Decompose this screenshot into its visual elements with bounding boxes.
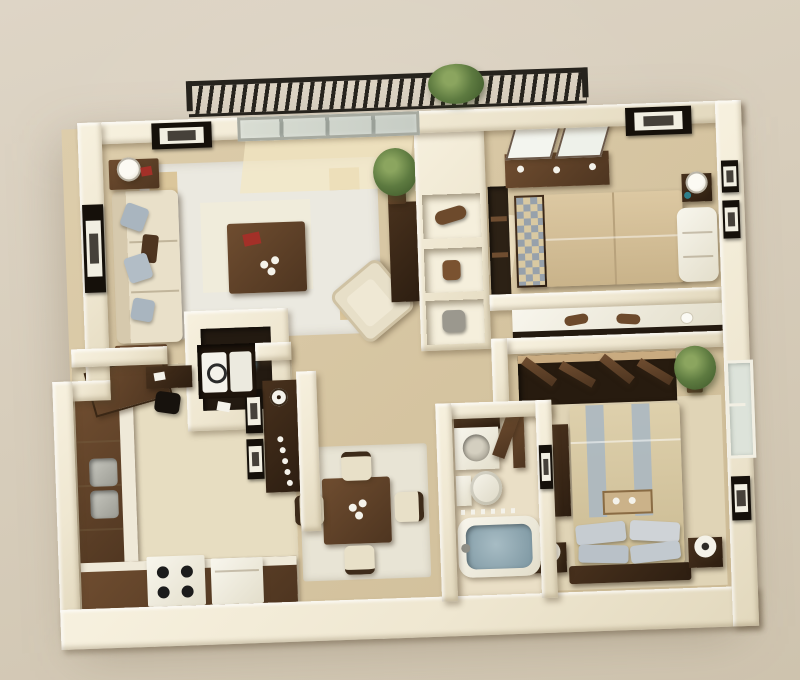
tray-dish [629,497,636,504]
armchair-cushion [345,277,395,328]
kitchen-sink-basin [89,458,118,487]
washer-door-ring [207,363,228,384]
bed1-headboard [514,195,547,288]
bathroom-wall-art [539,445,554,489]
storage-bin [442,310,466,333]
cabinet-seam [79,528,123,532]
kitchen-divider-wall-right [255,342,292,361]
console-with-clock [262,380,300,493]
dining-chair [344,545,375,575]
tray-dish [613,497,620,504]
range-stove [146,555,206,607]
desk [146,365,193,389]
shelf-niche [422,193,482,239]
bedroom1-wall-art-right [722,200,740,239]
bed2-pillow [578,545,628,564]
dining-table [322,476,392,544]
knob [287,480,293,486]
dining-chair [394,491,424,522]
floor-plan-scene [0,0,800,680]
living-wall-art-top [151,121,212,149]
desk-chair [154,390,182,414]
bowl [349,504,357,512]
knob [282,458,288,464]
bed2-pillow [629,520,680,543]
red-book [242,231,261,246]
bath-vanity [454,427,499,471]
bed2-pillow [630,540,682,564]
bowl [355,511,363,519]
burner [181,585,193,597]
perfume-bottle [517,166,524,173]
bed2-pillow [575,521,627,546]
toilet-tank [456,476,472,507]
bed1-mattress [544,190,685,287]
cabinet-seam [76,440,120,444]
washer [201,352,227,393]
closet-shelf [491,216,507,222]
sofa-pillow [130,297,155,322]
apartment-plan [41,88,759,652]
kitchen-sink-basin [90,490,119,519]
chaise [677,207,720,282]
coffee-cup [260,261,268,269]
bowl [358,499,366,507]
bathtub [457,515,541,578]
dining-chair [341,451,372,481]
kitchen-divider-wall-left [71,346,168,367]
perfume-bottle [589,163,596,170]
breakfast-tray [602,489,653,515]
sink-basin [462,434,490,462]
knob [280,447,286,453]
sofa-cushion-seam [131,290,179,294]
burner [157,566,169,578]
appliance-seam [215,569,259,573]
burner [157,586,169,598]
coffee-cup [271,256,279,264]
living-wall-art-left [82,204,106,293]
railing-post [582,67,589,97]
bed1-checkered-runner [516,197,545,286]
bed2-duvet [569,402,685,568]
bedroom2-wall-art-right [731,476,752,521]
shelf-niche [426,299,486,345]
coffee-cup [267,267,275,275]
coffee-table [227,221,307,294]
duffel-bag [433,204,468,227]
paper [153,372,165,382]
laundry-niche [197,343,257,399]
chaise-seam [682,231,712,234]
closet-shelf [492,252,508,258]
basket [442,260,461,281]
chaise-seam [683,255,713,258]
leaning-picture-frame [246,439,264,480]
knob [284,469,290,475]
soap-dish [680,312,693,324]
window-mullion [729,403,745,407]
side-console [388,201,419,302]
shelf-niche [424,247,484,293]
knob [277,436,283,442]
tray [564,313,589,327]
railing-post [186,81,193,111]
bathtub-water [465,524,532,570]
bedroom1-wall-art-top [625,106,692,136]
red-box [140,166,152,177]
perfume-bottle [553,166,560,173]
dryer [229,351,252,392]
bedroom1-wall-art-right [721,160,739,193]
burner [181,565,193,577]
bedroom1-closet-strip [488,186,512,295]
dishwasher [210,557,264,605]
tray [616,313,640,324]
bedroom2-window [725,360,756,459]
